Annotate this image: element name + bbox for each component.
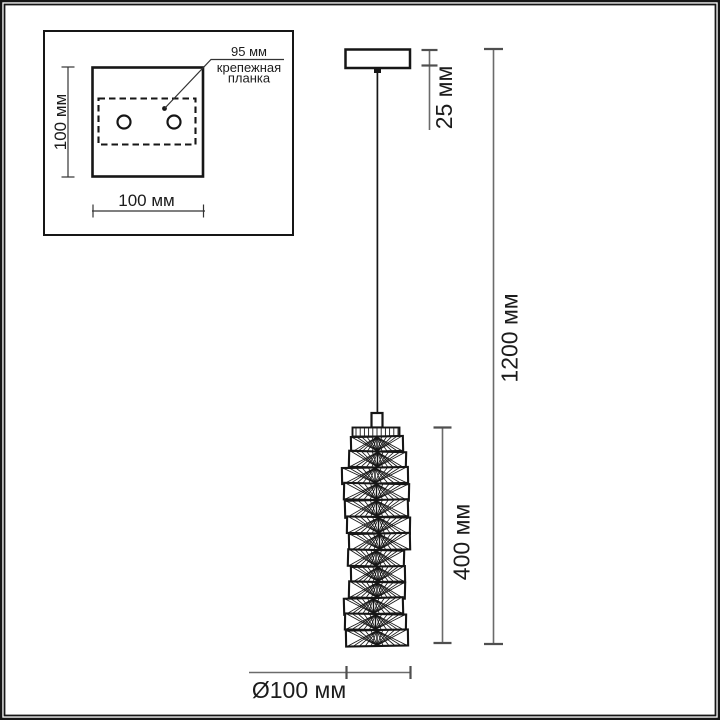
- shade-diameter-label: Ø100 мм: [252, 677, 346, 703]
- shade-crystal-segment: [349, 581, 405, 598]
- dim-shade-height: 400 мм: [434, 428, 475, 644]
- bracket-offset-label: 95 мм: [231, 44, 267, 59]
- dim-total-height: 1200 мм: [484, 49, 523, 644]
- shade-height-label: 400 мм: [449, 504, 475, 580]
- ceiling-canopy: [346, 50, 411, 69]
- shade-crystal-segment: [348, 549, 404, 567]
- crystal-shade: [342, 436, 410, 647]
- canopy-height-label: 25 мм: [431, 66, 457, 130]
- shade-crystal-segment: [347, 516, 410, 534]
- inset-height-label: 100 мм: [51, 94, 70, 150]
- screw-hole-right: [168, 116, 181, 129]
- shade-crystal-segment: [344, 597, 403, 615]
- shade-crystal-segment: [342, 467, 408, 484]
- shade-crystal-segment: [349, 451, 406, 468]
- inset-width-label: 100 мм: [118, 191, 174, 210]
- shade-crystal-segment: [344, 483, 409, 501]
- shade-crystal-segment: [351, 436, 403, 452]
- shade-socket: [372, 413, 383, 428]
- dim-shade-diameter: Ø100 мм: [249, 666, 412, 703]
- inset-width-dimension: 100 мм: [92, 191, 205, 218]
- shade-crystal-segment: [349, 533, 410, 551]
- shade-crystal-segment: [351, 566, 405, 582]
- technical-drawing-page: 95 мм крепежная планка 100 мм 100 мм 25 …: [0, 0, 720, 720]
- shade-crystal-segment: [345, 499, 408, 518]
- ceiling-plate: [93, 68, 204, 177]
- pendant-dimension-drawing: 95 мм крепежная планка 100 мм 100 мм 25 …: [0, 0, 720, 720]
- mounting-inset: 95 мм крепежная планка 100 мм 100 мм: [44, 31, 293, 235]
- pendant-lamp: [342, 50, 410, 647]
- bracket-name-line2: планка: [228, 71, 271, 86]
- inset-height-dimension: 100 мм: [51, 67, 75, 177]
- total-height-label: 1200 мм: [497, 293, 523, 382]
- screw-hole-left: [118, 116, 131, 129]
- shade-crystal-segment: [346, 629, 408, 646]
- dim-canopy-height: 25 мм: [422, 50, 458, 130]
- shade-crystal-segment: [345, 613, 406, 630]
